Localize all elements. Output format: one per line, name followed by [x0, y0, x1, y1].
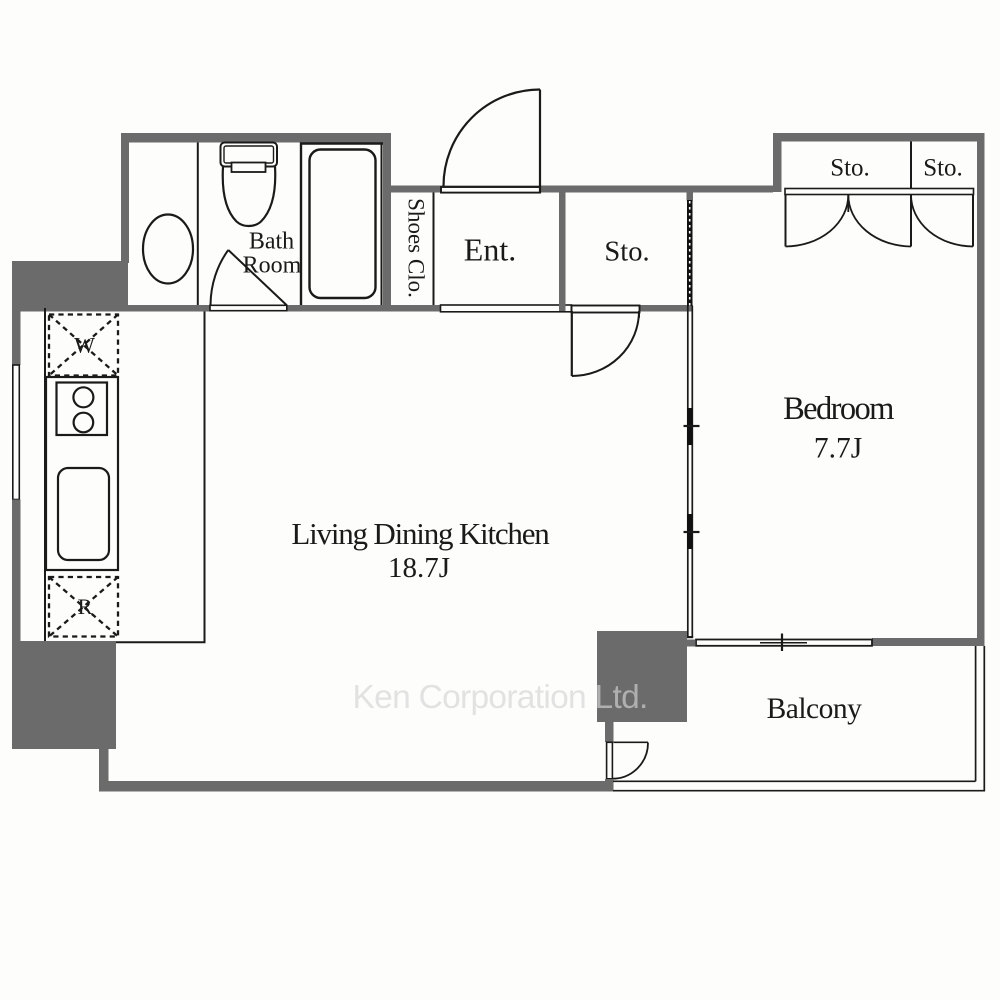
svg-text:7.7J: 7.7J	[814, 433, 862, 465]
svg-text:Shoes Clo.: Shoes Clo.	[404, 198, 429, 298]
svg-text:Bath: Bath	[249, 229, 294, 255]
svg-text:Ent.: Ent.	[464, 232, 516, 268]
svg-text:Living Dining Kitchen: Living Dining Kitchen	[291, 516, 550, 551]
svg-text:Sto.: Sto.	[830, 155, 870, 182]
svg-text:Balcony: Balcony	[767, 693, 863, 725]
svg-text:R: R	[78, 594, 93, 619]
svg-text:W: W	[74, 333, 95, 358]
svg-text:Room: Room	[243, 253, 302, 279]
svg-text:Bedroom: Bedroom	[783, 391, 894, 427]
svg-text:Sto.: Sto.	[923, 155, 963, 182]
svg-text:18.7J: 18.7J	[388, 552, 450, 584]
svg-text:Ken Corporation Ltd.: Ken Corporation Ltd.	[353, 679, 648, 716]
svg-text:Sto.: Sto.	[604, 237, 649, 268]
